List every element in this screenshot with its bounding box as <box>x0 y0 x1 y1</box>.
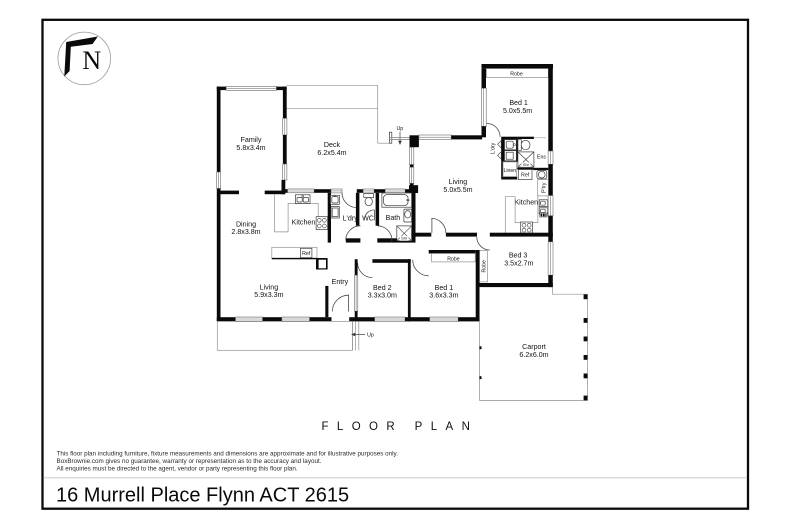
svg-text:Robe: Robe <box>510 71 523 77</box>
svg-text:Carport: Carport <box>522 343 546 351</box>
svg-text:Kitchen: Kitchen <box>514 198 538 206</box>
svg-text:Entry: Entry <box>332 278 349 286</box>
svg-text:Up: Up <box>367 332 374 338</box>
svg-text:FLOOR PLAN: FLOOR PLAN <box>321 421 478 433</box>
svg-text:Robe: Robe <box>447 256 460 262</box>
svg-text:Bath: Bath <box>386 214 401 222</box>
svg-text:16 Murrell Place Flynn ACT 261: 16 Murrell Place Flynn ACT 2615 <box>56 485 349 507</box>
svg-text:5.0x5.5m: 5.0x5.5m <box>443 186 472 194</box>
svg-text:Kitchen: Kitchen <box>292 218 316 226</box>
svg-text:L'dry: L'dry <box>343 214 359 222</box>
svg-text:3.5x2.7m: 3.5x2.7m <box>504 259 533 267</box>
svg-text:Bed 2: Bed 2 <box>373 284 392 292</box>
svg-text:Up: Up <box>396 126 403 132</box>
svg-text:Ens: Ens <box>537 155 546 161</box>
svg-text:3.3x3.0m: 3.3x3.0m <box>368 292 397 300</box>
svg-text:Bed 1: Bed 1 <box>509 99 528 107</box>
svg-text:Robe: Robe <box>481 260 487 273</box>
svg-text:Living: Living <box>260 283 279 291</box>
svg-text:5.8x3.4m: 5.8x3.4m <box>236 144 265 152</box>
svg-text:WC: WC <box>362 214 374 222</box>
svg-text:6.2x5.4m: 6.2x5.4m <box>317 149 346 157</box>
svg-text:5.9x3.3m: 5.9x3.3m <box>254 291 283 299</box>
svg-text:2.8x3.8m: 2.8x3.8m <box>231 228 260 236</box>
svg-text:Deck: Deck <box>324 141 341 149</box>
svg-text:Dining: Dining <box>236 220 256 228</box>
svg-text:This floor plan including furn: This floor plan including furniture, fix… <box>57 451 399 458</box>
svg-text:Shr: Shr <box>401 236 408 241</box>
svg-text:L'dry: L'dry <box>491 142 497 153</box>
svg-text:Linen: Linen <box>503 168 516 174</box>
svg-text:Living: Living <box>449 178 468 186</box>
svg-text:Ref: Ref <box>521 173 530 179</box>
svg-text:P'try: P'try <box>541 182 547 193</box>
svg-text:N: N <box>82 46 101 75</box>
svg-text:All enquiries must be directed: All enquiries must be directed to the ag… <box>57 466 298 473</box>
svg-text:Family: Family <box>241 136 262 144</box>
svg-text:Bed 1: Bed 1 <box>435 284 454 292</box>
svg-text:3.6x3.3m: 3.6x3.3m <box>429 292 458 300</box>
svg-text:Ref: Ref <box>302 251 311 257</box>
svg-text:5.0x5.5m: 5.0x5.5m <box>503 107 532 115</box>
svg-text:BoxBrownie.com gives no guaran: BoxBrownie.com gives no guarantee, warra… <box>57 458 322 465</box>
svg-text:6.2x6.0m: 6.2x6.0m <box>519 351 548 359</box>
svg-text:Shr: Shr <box>523 162 530 167</box>
svg-text:Bed 3: Bed 3 <box>509 251 528 259</box>
